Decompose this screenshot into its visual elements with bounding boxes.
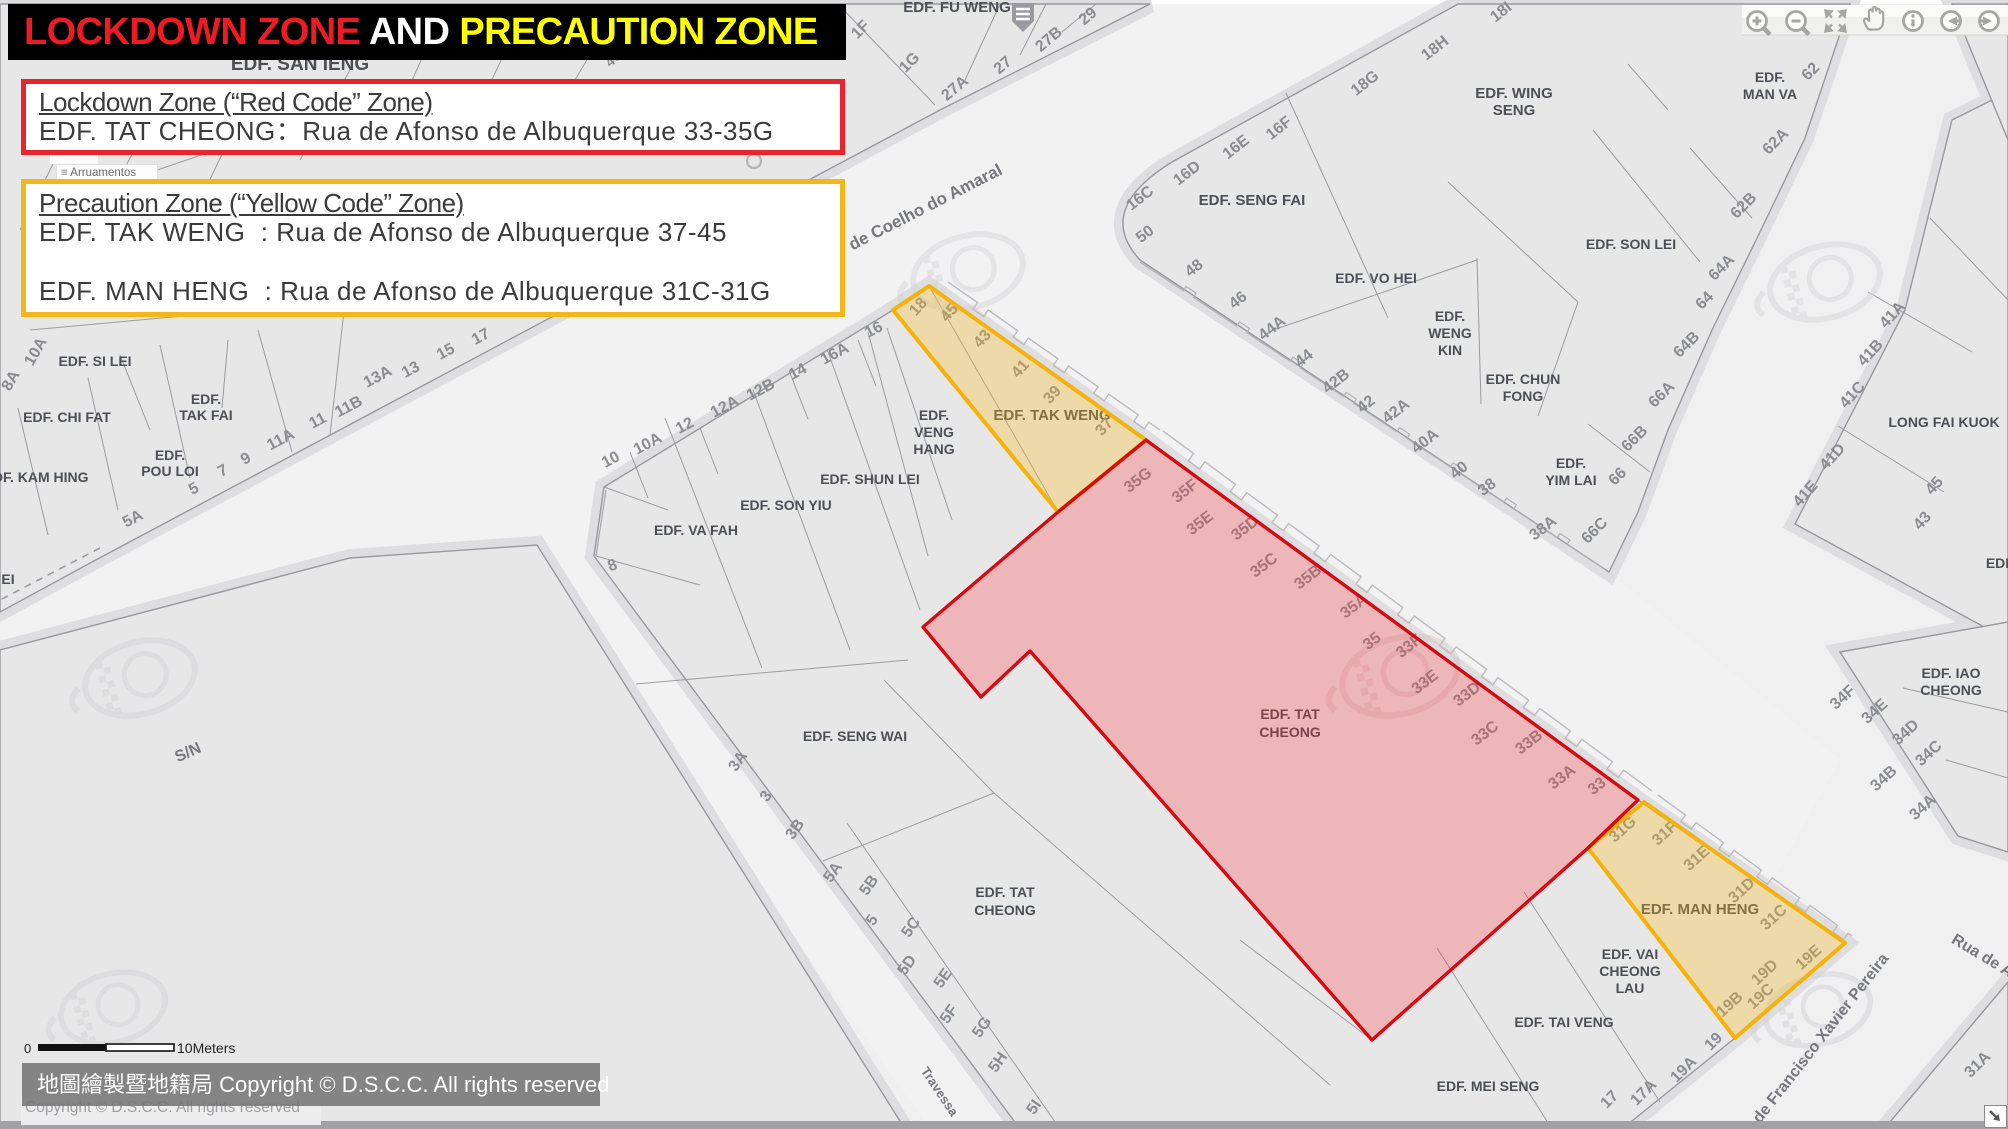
svg-text:POU LOI: POU LOI xyxy=(141,463,199,479)
svg-text:EDF. SENG FAI: EDF. SENG FAI xyxy=(1199,192,1306,209)
svg-text:EDF.: EDF. xyxy=(191,391,221,407)
svg-text:EDF. WING: EDF. WING xyxy=(1475,85,1553,102)
svg-text:0: 0 xyxy=(24,1041,31,1056)
svg-text:EDF.: EDF. xyxy=(155,447,185,463)
svg-text:CHEONG: CHEONG xyxy=(1920,682,1982,698)
svg-text:KIN: KIN xyxy=(1438,342,1462,358)
svg-text:HANG: HANG xyxy=(913,441,954,457)
svg-text:EDF. CHI FAT: EDF. CHI FAT xyxy=(23,409,111,425)
svg-text:EDF. VA FAH: EDF. VA FAH xyxy=(654,522,738,538)
svg-text:EDF. VAI: EDF. VAI xyxy=(1602,946,1659,962)
svg-text:EDF. KAM HING: EDF. KAM HING xyxy=(0,469,89,485)
svg-text:10Meters: 10Meters xyxy=(177,1040,235,1056)
svg-text:EDF. MEI SENG: EDF. MEI SENG xyxy=(1437,1078,1540,1094)
svg-text:SENG: SENG xyxy=(1493,102,1536,119)
svg-text:EDF. SON LEI: EDF. SON LEI xyxy=(1586,236,1676,252)
svg-text:LAU: LAU xyxy=(1616,980,1645,996)
svg-text:EDF. CHUN: EDF. CHUN xyxy=(1486,371,1561,387)
svg-text:EDF. SHUN LEI: EDF. SHUN LEI xyxy=(820,471,920,487)
svg-text:CHEONG: CHEONG xyxy=(974,902,1036,918)
svg-text:LONG FAI KUOK: LONG FAI KUOK xyxy=(1888,414,1999,430)
svg-text:EDF. VO HEI: EDF. VO HEI xyxy=(1335,270,1417,286)
svg-text:EDF. SI LEI: EDF. SI LEI xyxy=(58,353,131,369)
svg-text:EDF. TAT: EDF. TAT xyxy=(975,884,1035,900)
svg-text:EI: EI xyxy=(1,571,14,587)
svg-text:VENG: VENG xyxy=(914,424,954,440)
svg-text:EDF.: EDF. xyxy=(919,407,949,423)
svg-text:FONG: FONG xyxy=(1503,388,1544,404)
svg-text:CHEONG: CHEONG xyxy=(1599,963,1661,979)
svg-text:WENG: WENG xyxy=(1428,325,1472,341)
svg-text:EDF.: EDF. xyxy=(1556,455,1586,471)
svg-text:EDF.: EDF. xyxy=(1755,69,1785,85)
svg-text:YIM LAI: YIM LAI xyxy=(1545,472,1596,488)
svg-text:EDF. SON YIU: EDF. SON YIU xyxy=(740,497,832,513)
svg-text:TAK FAI: TAK FAI xyxy=(179,407,232,423)
svg-text:EDF.: EDF. xyxy=(1986,555,2008,571)
svg-text:EDF.: EDF. xyxy=(1435,308,1465,324)
svg-text:MAN VA: MAN VA xyxy=(1743,86,1797,102)
svg-text:EDF. SENG WAI: EDF. SENG WAI xyxy=(803,728,907,744)
svg-text:EDF. TAI VENG: EDF. TAI VENG xyxy=(1514,1014,1613,1030)
svg-text:EDF. IAO: EDF. IAO xyxy=(1921,665,1980,681)
